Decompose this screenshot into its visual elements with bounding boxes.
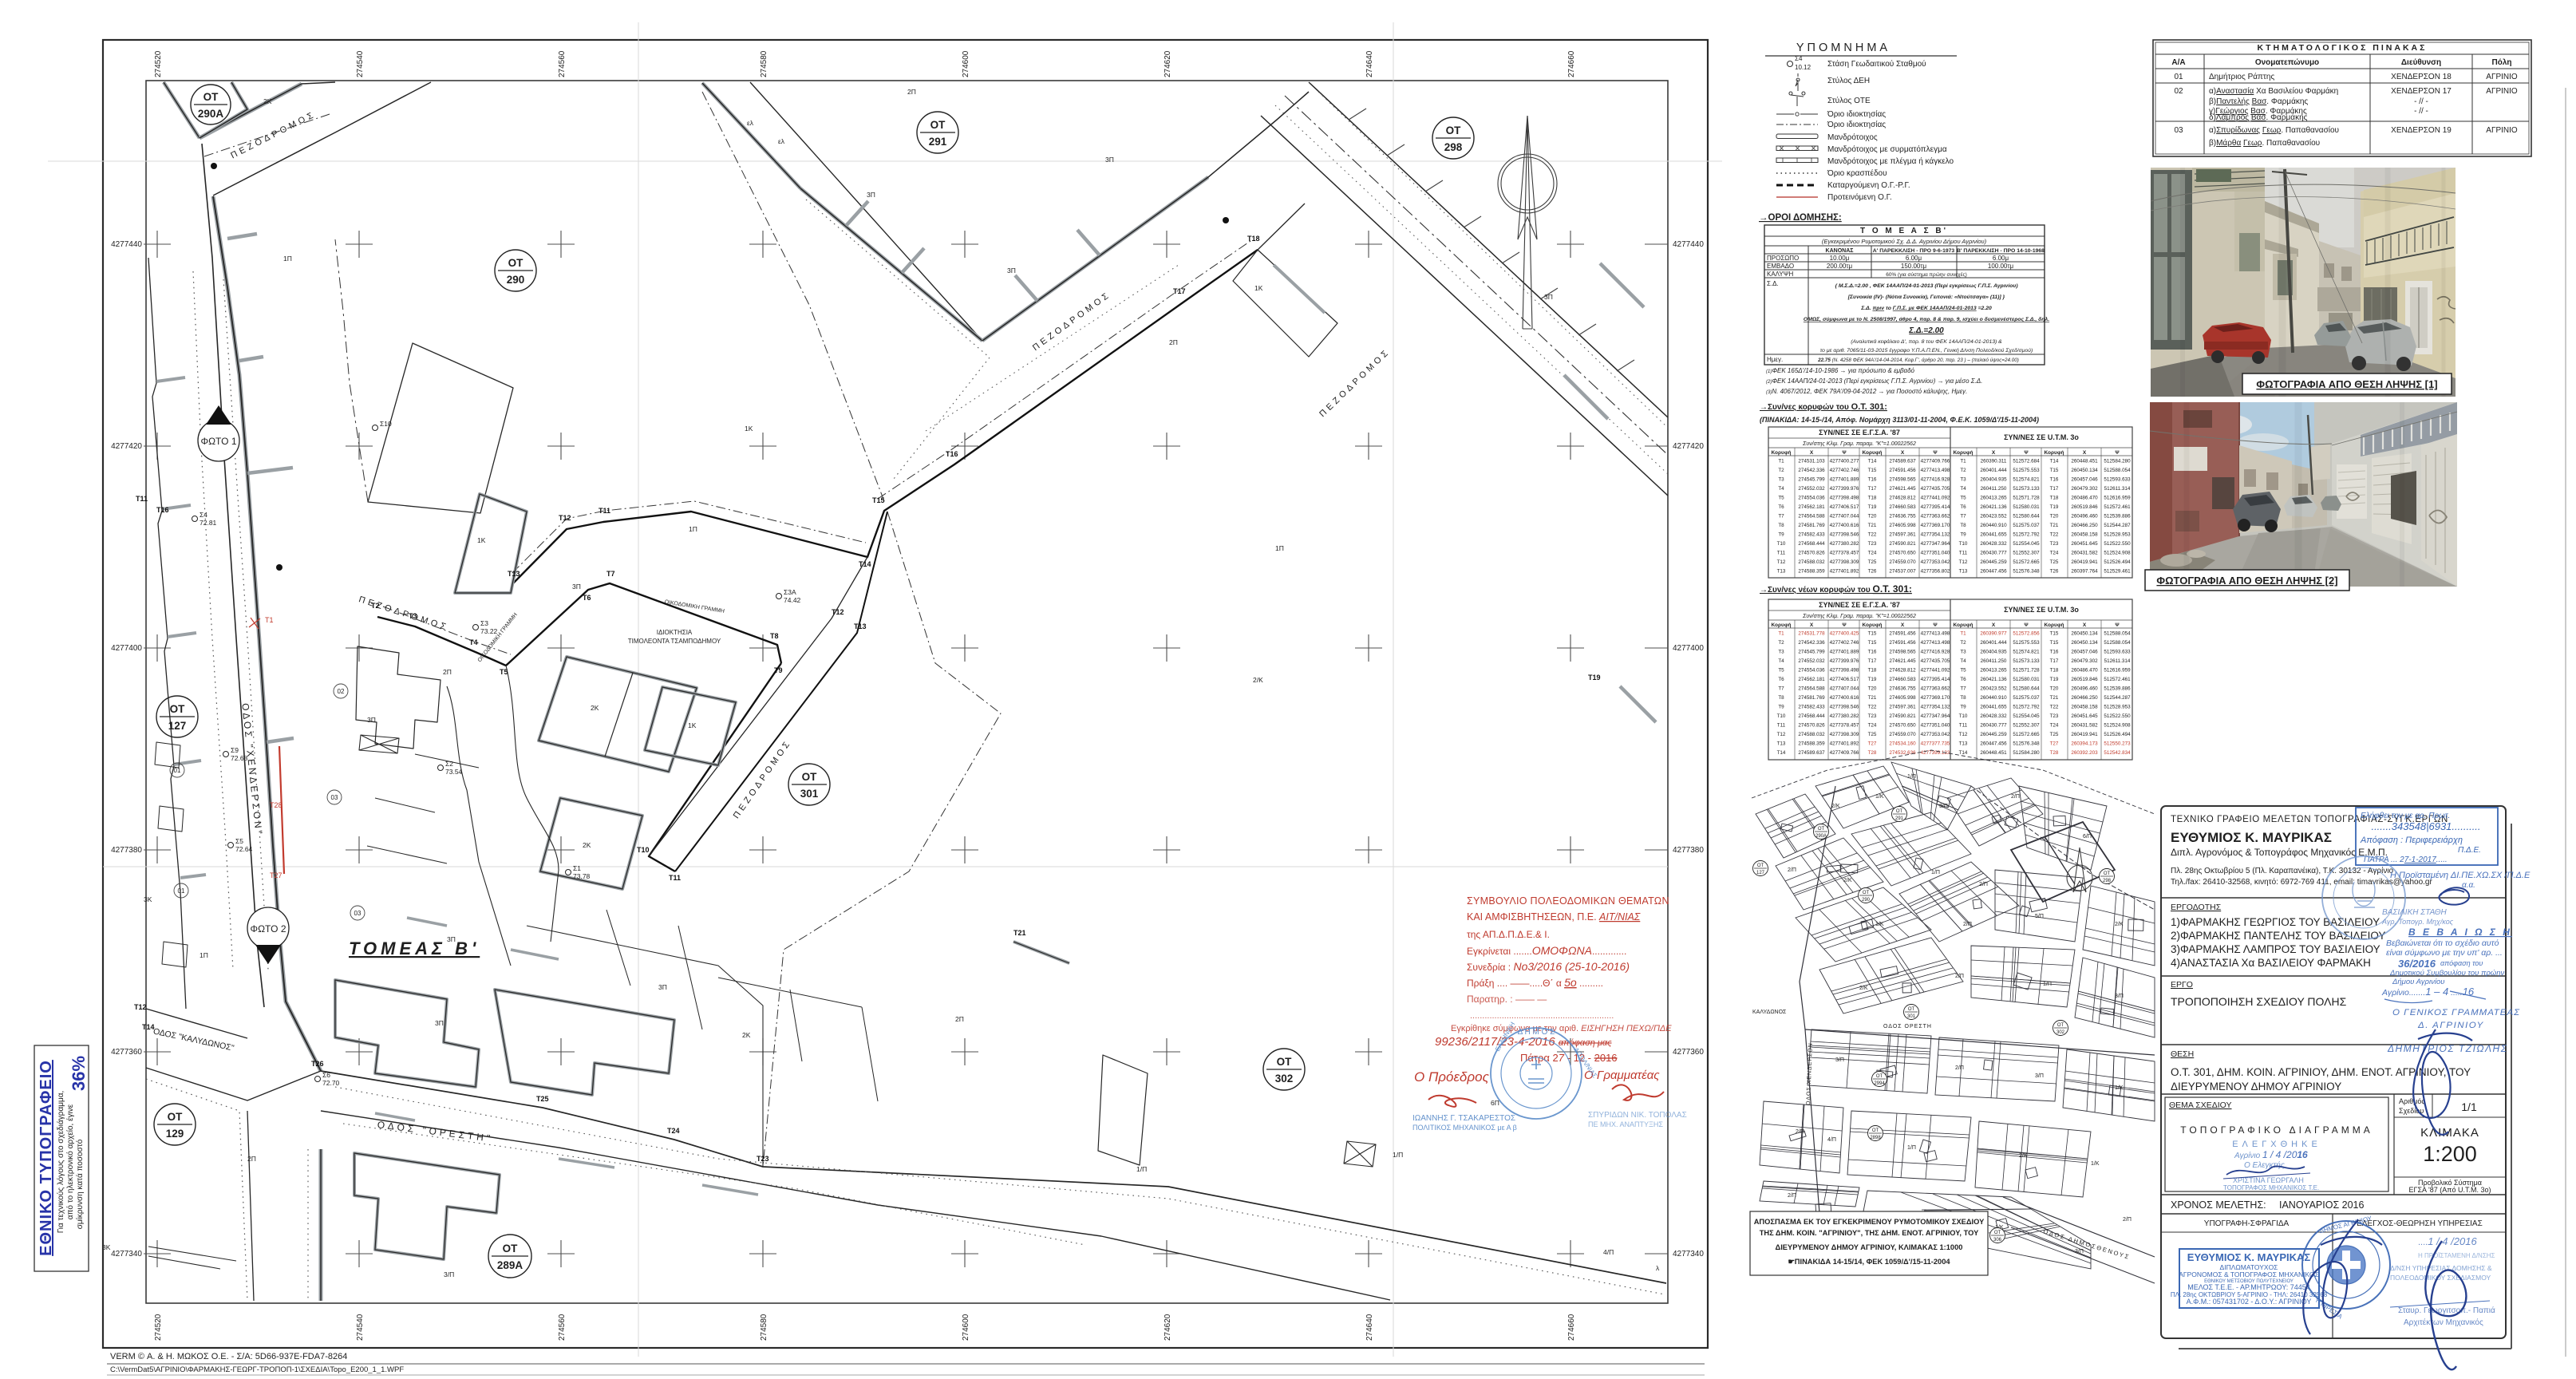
- svg-text:512574.821: 512574.821: [2013, 477, 2040, 483]
- svg-text:Τ18: Τ18: [2050, 668, 2059, 674]
- svg-text:ΔΙΕΥΡΥΜΕΝΟΥ ΔΗΜΟΥ ΑΓΡΙΝΙΟΥ: ΔΙΕΥΡΥΜΕΝΟΥ ΔΗΜΟΥ ΑΓΡΙΝΙΟΥ: [2171, 1081, 2341, 1093]
- svg-text:512572.461: 512572.461: [2104, 677, 2131, 682]
- svg-text:ΚΤΗΜΑΤΟΛΟΓΙΚΟΣ ΠΙΝΑΚΑΣ: ΚΤΗΜΑΤΟΛΟΓΙΚΟΣ ΠΙΝΑΚΑΣ: [2258, 43, 2428, 53]
- svg-text:2/Π: 2/Π: [1955, 1065, 1964, 1071]
- svg-text:4277363.662: 4277363.662: [1921, 686, 1950, 692]
- svg-text:ΚΑΛΥΨΗ: ΚΑΛΥΨΗ: [1767, 271, 1793, 278]
- svg-text:274531.103: 274531.103: [1798, 459, 1825, 464]
- svg-text:512526.494: 512526.494: [2104, 732, 2131, 737]
- svg-text:260428.332: 260428.332: [1980, 713, 2007, 719]
- svg-text:Τ10: Τ10: [1777, 713, 1786, 719]
- svg-text:4277407.044: 4277407.044: [1830, 514, 1859, 520]
- svg-text:512573.133: 512573.133: [2013, 658, 2040, 664]
- svg-text:150.00τμ: 150.00τμ: [1901, 263, 1927, 270]
- svg-text:Τ19: Τ19: [2050, 677, 2059, 682]
- svg-text:T13: T13: [854, 622, 867, 630]
- svg-text:4277440: 4277440: [111, 240, 142, 249]
- svg-text:274581.769: 274581.769: [1798, 523, 1825, 528]
- svg-text:T12: T12: [134, 1003, 147, 1011]
- svg-text:α)Αναστασία Χα Βασιλείου Φαρμά: α)Αναστασία Χα Βασιλείου Φαρμάκη: [2209, 86, 2338, 96]
- svg-text:290Α: 290Α: [1815, 834, 1827, 839]
- svg-text:ΤΗΣ ΔΗΜ. ΚΟΙΝ. "ΑΓΡΙΝΙΟΥ",: ΤΗΣ ΔΗΜ. ΚΟΙΝ. "ΑΓΡΙΝΙΟΥ", ΤΗΣ ΔΗΜ. ΕΝΟΤ…: [1760, 1229, 1979, 1237]
- svg-text:β)Μάρθα Γεωρ. Παπαθανασίου: β)Μάρθα Γεωρ. Παπαθανασίου: [2209, 138, 2320, 148]
- svg-text:ΕΜΒΑΔΟ: ΕΜΒΑΔΟ: [1767, 263, 1794, 270]
- svg-text:274598.565: 274598.565: [1889, 477, 1916, 483]
- svg-text:(Αναλυτικά κεφάλαιο Δ', παρ. 8: (Αναλυτικά κεφάλαιο Δ', παρ. 8 του ΦΕΚ 1…: [1851, 338, 2002, 345]
- svg-text:T17: T17: [1173, 287, 1186, 295]
- svg-text:274588.032: 274588.032: [1798, 732, 1825, 737]
- svg-text:ΤΙΜΟΛΕΟΝΤΑ ΤΣΑΜΠΟΔΗΜΟΥ: ΤΙΜΟΛΕΟΝΤΑ ΤΣΑΜΠΟΔΗΜΟΥ: [628, 638, 721, 645]
- svg-text:291: 291: [929, 136, 947, 148]
- svg-text:(2)ΦΕΚ 14ΑΑΠ/24-01-2013 (Περί: (2)ΦΕΚ 14ΑΑΠ/24-01-2013 (Περί εγκρίσεως …: [1766, 377, 1982, 385]
- svg-text:512584.280: 512584.280: [2104, 459, 2131, 464]
- svg-text:512539.886: 512539.886: [2104, 686, 2131, 692]
- svg-text:274568.444: 274568.444: [1798, 713, 1825, 719]
- svg-text:1Π: 1Π: [689, 525, 697, 533]
- svg-text:ΦΩΤΟΓΡΑΦΙΑ ΑΠΟ ΘΕΣΗ ΛΗΨΗΣ: ΦΩΤΟΓΡΑΦΙΑ ΑΠΟ ΘΕΣΗ ΛΗΨΗΣ [1]: [2256, 378, 2437, 390]
- svg-text:Τ12: Τ12: [1777, 559, 1786, 565]
- svg-text:Τ15: Τ15: [1868, 631, 1877, 637]
- svg-text:01: 01: [178, 887, 185, 895]
- svg-text:260431.582: 260431.582: [2071, 723, 2098, 729]
- svg-text:1Κ: 1Κ: [477, 536, 486, 544]
- svg-text:σμίκρυνση κατά ποσοστό: σμίκρυνση κατά ποσοστό: [75, 1139, 85, 1229]
- svg-text:C:\VermDat5\ΑΓΡΙΝΙΟ\ΦΑΡΜΑΚΗΣ-Γ: C:\VermDat5\ΑΓΡΙΝΙΟ\ΦΑΡΜΑΚΗΣ-ΓΕΩΡΓ-ΤΡΟΠΟ…: [110, 1365, 404, 1374]
- svg-text:274542.336: 274542.336: [1798, 468, 1825, 473]
- svg-text:298: 298: [2103, 879, 2112, 883]
- svg-text:2/Κ: 2/Κ: [1253, 676, 1263, 684]
- svg-text:512544.287: 512544.287: [2104, 523, 2131, 528]
- svg-text:ΠΕΖΟΔΡΟΜΟΣ: ΠΕΖΟΔΡΟΜΟΣ: [732, 737, 794, 820]
- svg-text:4277413.498: 4277413.498: [1921, 640, 1950, 646]
- svg-text:512580.644: 512580.644: [2013, 514, 2040, 520]
- svg-text:4277409.766: 4277409.766: [1921, 459, 1950, 464]
- svg-text:03: 03: [2174, 126, 2183, 135]
- svg-text:274660: 274660: [1567, 50, 1576, 77]
- svg-text:Σ4: Σ4: [200, 511, 207, 519]
- svg-text:ΦΩΤΟ 2: ΦΩΤΟ 2: [251, 923, 286, 934]
- svg-text:Τ25: Τ25: [2050, 559, 2059, 565]
- svg-text:{ Μ.Σ.Δ.=2.00 , ΦΕΚ 14ΑΑΠ/24-: { Μ.Σ.Δ.=2.00 , ΦΕΚ 14ΑΑΠ/24-01-2013 (Πε…: [1835, 283, 2018, 289]
- svg-text:Τ9: Τ9: [1960, 532, 1966, 538]
- svg-text:260486.470: 260486.470: [2071, 496, 2098, 501]
- svg-text:1/Κ: 1/Κ: [2115, 1085, 2124, 1091]
- svg-text:301: 301: [800, 788, 819, 800]
- svg-text:Εγκρίνεται .......ΟΜΟΦΩΝΑ.....: Εγκρίνεται .......ΟΜΟΦΩΝΑ.............: [1467, 944, 1626, 957]
- svg-text:Συν/στης Κλιμ. Γραμ. παραμ. "Κ: Συν/στης Κλιμ. Γραμ. παραμ. "Κ"=1.000225…: [1802, 441, 1916, 447]
- svg-text:Στύλος ΟΤΕ: Στύλος ΟΤΕ: [1827, 96, 1871, 105]
- svg-text:Τ13: Τ13: [1959, 569, 1968, 575]
- svg-text:Τ6: Τ6: [1960, 677, 1966, 682]
- svg-text:Τ8: Τ8: [1960, 523, 1966, 528]
- svg-text:ΙΑΝΟΥΑΡΙΟΣ 2016: ΙΑΝΟΥΑΡΙΟΣ 2016: [2279, 1199, 2364, 1211]
- svg-text:ΟΔΟΣ "ΧΕΝΔΕΡΣΟΝ": ΟΔΟΣ "ΧΕΝΔΕΡΣΟΝ": [239, 703, 264, 837]
- svg-text:02: 02: [338, 688, 345, 695]
- svg-text:5/Π: 5/Π: [2035, 914, 2044, 919]
- svg-text:Τ1: Τ1: [265, 616, 274, 624]
- svg-text:4277399.976: 4277399.976: [1830, 486, 1859, 492]
- svg-text:260390.977: 260390.977: [1980, 631, 2007, 637]
- svg-text:02: 02: [2174, 87, 2183, 96]
- svg-text:274621.445: 274621.445: [1889, 658, 1916, 664]
- svg-text:2/Κ: 2/Κ: [2019, 1153, 2028, 1159]
- svg-text:4277398.309: 4277398.309: [1830, 732, 1859, 737]
- svg-text:Τ20: Τ20: [1868, 686, 1877, 692]
- svg-text:274520: 274520: [154, 50, 163, 77]
- svg-text:512552.307: 512552.307: [2013, 723, 2040, 729]
- svg-text:Τ28: Τ28: [1868, 750, 1877, 756]
- svg-text:ελ: ελ: [747, 119, 754, 127]
- svg-text:α)Σπυρίδωνας Γεωρ. Παπαθανασίο: α)Σπυρίδωνας Γεωρ. Παπαθανασίου: [2209, 125, 2339, 135]
- svg-text:Χ: Χ: [2083, 622, 2087, 628]
- svg-text:2Π: 2Π: [443, 668, 452, 676]
- svg-text:3Π: 3Π: [658, 983, 667, 991]
- svg-text:Για τεχνικούς λόγους στο σ: Για τεχνικούς λόγους στο σχεδιάγραμμα,: [56, 1091, 65, 1234]
- svg-text:Σ9: Σ9: [231, 746, 239, 754]
- svg-text:4277351.040: 4277351.040: [1921, 551, 1950, 556]
- svg-text:274590.821: 274590.821: [1889, 541, 1916, 547]
- svg-text:512526.494: 512526.494: [2104, 559, 2131, 565]
- svg-text:274660.583: 274660.583: [1889, 677, 1916, 682]
- svg-text:274591.456: 274591.456: [1889, 468, 1916, 473]
- svg-text:2Κ: 2Κ: [591, 704, 599, 712]
- svg-text:Τ3: Τ3: [1778, 650, 1784, 655]
- svg-text:4277340: 4277340: [1673, 1250, 1704, 1258]
- svg-text:4277400.616: 4277400.616: [1830, 523, 1859, 528]
- svg-text:ΕΘΝΙΚΟ ΤΥΠΟΓΡΑΦΕΙΟ: ΕΘΝΙΚΟ ΤΥΠΟΓΡΑΦΕΙΟ: [38, 1060, 55, 1256]
- svg-text:260413.265: 260413.265: [1980, 668, 2007, 674]
- svg-text:- // -: - // -: [2414, 107, 2428, 116]
- svg-text:3Π: 3Π: [1544, 293, 1553, 301]
- svg-text:260441.655: 260441.655: [1980, 532, 2007, 538]
- svg-text:Τ21: Τ21: [2050, 523, 2059, 528]
- svg-text:T19: T19: [1588, 674, 1601, 682]
- svg-text:Ο Πρόεδρος: Ο Πρόεδρος: [1414, 1069, 1490, 1085]
- svg-text:ΚΑΛΥΔΩΝΟΣ: ΚΑΛΥΔΩΝΟΣ: [1752, 1010, 1787, 1015]
- svg-text:Κορυφή: Κορυφή: [1954, 450, 1973, 456]
- svg-text:T3: T3: [409, 612, 417, 620]
- svg-text:4277400.425: 4277400.425: [1830, 631, 1859, 637]
- svg-text:T7: T7: [606, 570, 615, 578]
- svg-text:4277401.892: 4277401.892: [1830, 569, 1859, 575]
- svg-text:274570.650: 274570.650: [1889, 723, 1916, 729]
- svg-text:512524.908: 512524.908: [2104, 723, 2131, 729]
- svg-text:1/1: 1/1: [2461, 1100, 2477, 1113]
- svg-text:ΚΑΙ ΑΜΦΙΣΒΗΤΗΣΕΩΝ, Π.Ε. ΑΙΤ/ΝΙ: ΚΑΙ ΑΜΦΙΣΒΗΤΗΣΕΩΝ, Π.Ε. ΑΙΤ/ΝΙΑΣ: [1467, 911, 1641, 923]
- svg-text:T25: T25: [536, 1095, 549, 1103]
- svg-text:4277400: 4277400: [1673, 644, 1704, 653]
- svg-text:512571.728: 512571.728: [2013, 496, 2040, 501]
- svg-text:260466.250: 260466.250: [2071, 523, 2098, 528]
- svg-text:Ψ: Ψ: [2115, 450, 2119, 456]
- svg-text:4277435.705: 4277435.705: [1921, 658, 1950, 664]
- svg-text:ΙΔΙΟΚΤΗΣΙΑ: ΙΔΙΟΚΤΗΣΙΑ: [657, 629, 693, 636]
- svg-text:3Π: 3Π: [1105, 156, 1114, 164]
- svg-text:4277369.170: 4277369.170: [1921, 523, 1950, 528]
- svg-text:274660.583: 274660.583: [1889, 504, 1916, 510]
- svg-text:Τ20: Τ20: [2050, 686, 2059, 692]
- svg-text:Δημήτριος Ράπτης: Δημήτριος Ράπτης: [2209, 72, 2274, 81]
- svg-text:ΥΠΟΜΝΗΜΑ: ΥΠΟΜΝΗΜΑ: [1796, 41, 1891, 54]
- svg-text:.......343548|6931..........: .......343548|6931..........: [2371, 820, 2480, 832]
- svg-text:290A: 290A: [198, 108, 224, 120]
- svg-text:73.22: 73.22: [480, 627, 498, 635]
- svg-text:Τ4: Τ4: [1960, 486, 1966, 492]
- svg-text:260431.582: 260431.582: [2071, 551, 2098, 556]
- svg-text:512524.908: 512524.908: [2104, 551, 2131, 556]
- svg-text:δ)Λάμπρος Βασ. Φαρμάκης: δ)Λάμπρος Βασ. Φαρμάκης: [2209, 113, 2308, 122]
- svg-text:512572.461: 512572.461: [2104, 504, 2131, 510]
- svg-text:2/Κ: 2/Κ: [1831, 804, 1840, 809]
- svg-text:ΣΥΝ/ΝΕΣ ΣΕ Ε.Γ.Σ.Α. '87: ΣΥΝ/ΝΕΣ ΣΕ Ε.Γ.Σ.Α. '87: [1819, 429, 1900, 437]
- svg-text:512522.550: 512522.550: [2104, 541, 2131, 547]
- svg-text:1/Π: 1/Π: [1136, 1165, 1147, 1173]
- svg-text:Προτεινόμενη Ο.Γ.: Προτεινόμενη Ο.Γ.: [1827, 192, 1892, 202]
- svg-text:Στύλος ΔΕΗ: Στύλος ΔΕΗ: [1827, 76, 1870, 85]
- svg-text:ΟΤ: ΟΤ: [1757, 863, 1764, 868]
- svg-text:289A: 289A: [497, 1259, 523, 1271]
- svg-text:Τ8: Τ8: [1778, 523, 1784, 528]
- svg-text:Τ16: Τ16: [2050, 477, 2059, 483]
- svg-text:Τ23: Τ23: [1868, 713, 1877, 719]
- svg-text:είναι σύμφωνο με την υπ' αρ. .: είναι σύμφωνο με την υπ' αρ. ...: [2386, 948, 2503, 958]
- svg-text:ελ: ελ: [778, 137, 785, 145]
- svg-text:T5: T5: [500, 668, 508, 676]
- svg-text:274560: 274560: [558, 50, 567, 77]
- svg-text:72.70: 72.70: [322, 1079, 340, 1087]
- svg-text:2/Π: 2/Π: [1788, 867, 1796, 873]
- svg-text:Τ7: Τ7: [1778, 686, 1784, 692]
- svg-text:Ελήφθει την με αρ. Πρωτ.: Ελήφθει την με αρ. Πρωτ.: [2361, 811, 2450, 820]
- svg-text:ΟΔΟΣ ΟΡΕΣΤΗ: ΟΔΟΣ ΟΡΕΣΤΗ: [1883, 1024, 1932, 1029]
- svg-text:Τ12: Τ12: [1959, 559, 1968, 565]
- svg-text:1Κ: 1Κ: [1254, 284, 1263, 292]
- svg-text:ΘΕΣΗ: ΘΕΣΗ: [2171, 1049, 2194, 1059]
- svg-text:Τ23: Τ23: [1868, 541, 1877, 547]
- svg-text:274600: 274600: [962, 1314, 970, 1341]
- svg-text:4277407.044: 4277407.044: [1830, 686, 1859, 692]
- svg-text:274552.032: 274552.032: [1798, 486, 1825, 492]
- svg-text:4277347.964: 4277347.964: [1921, 713, 1950, 719]
- svg-text:ΠΟΛΙΤΙΚΟΣ ΜΗΧΑΝΙΚΟΣ με Α β: ΠΟΛΙΤΙΚΟΣ ΜΗΧΑΝΙΚΟΣ με Α β: [1412, 1124, 1517, 1132]
- svg-text:4277401.889: 4277401.889: [1830, 650, 1859, 655]
- svg-text:→Συν/νες κορυφών του Ο.Τ. 301:: →Συν/νες κορυφών του Ο.Τ. 301:: [1760, 402, 1887, 412]
- svg-text:274636.755: 274636.755: [1889, 514, 1916, 520]
- svg-text:Πόλη: Πόλη: [2492, 58, 2512, 67]
- svg-text:274591.456: 274591.456: [1889, 631, 1916, 637]
- svg-text:ΑΓΡΙΝΙΟ: ΑΓΡΙΝΙΟ: [2486, 73, 2518, 81]
- svg-text:512550.273: 512550.273: [2104, 741, 2131, 747]
- svg-text:Χ: Χ: [1810, 622, 1814, 628]
- svg-text:Τ14: Τ14: [2050, 459, 2059, 464]
- svg-text:ΑΓΡΟΝΟΜΟΣ & ΤΟΠΟΓΡΑΦΟΣ ΜΗΧΑΝΙΚ: ΑΓΡΟΝΟΜΟΣ & ΤΟΠΟΓΡΑΦΟΣ ΜΗΧΑΝΙΚΟΣ: [2179, 1270, 2318, 1278]
- svg-text:260419.941: 260419.941: [2071, 559, 2098, 565]
- svg-text:ΚΑΝΟΝΑΣ: ΚΑΝΟΝΑΣ: [1826, 248, 1854, 254]
- svg-text:Κορυφή: Κορυφή: [2045, 450, 2064, 456]
- svg-text:274581.769: 274581.769: [1798, 695, 1825, 701]
- svg-text:4277441.092: 4277441.092: [1921, 668, 1950, 674]
- svg-text:Καταργούμενη Ο.Γ.-Ρ.Γ.: Καταργούμενη Ο.Γ.-Ρ.Γ.: [1827, 180, 1910, 190]
- svg-text:73.54: 73.54: [445, 768, 463, 776]
- svg-text:274628.812: 274628.812: [1889, 668, 1916, 674]
- svg-text:512572.792: 512572.792: [2013, 532, 2040, 538]
- svg-text:274570.826: 274570.826: [1798, 551, 1825, 556]
- svg-text:Τ25: Τ25: [1868, 559, 1877, 565]
- svg-text:260411.250: 260411.250: [1981, 486, 2007, 492]
- svg-text:Τ22: Τ22: [1868, 532, 1877, 538]
- svg-text:Τ17: Τ17: [2050, 658, 2059, 664]
- svg-text:1/Κ: 1/Κ: [2091, 1161, 2100, 1167]
- svg-text:3/Π: 3/Π: [2035, 1073, 2044, 1079]
- svg-text:Αρχιτέκτων Μηχανικός: Αρχιτέκτων Μηχανικός: [2404, 1318, 2483, 1327]
- svg-text:512611.314: 512611.314: [2104, 486, 2131, 492]
- svg-text:Τ21: Τ21: [1868, 523, 1877, 528]
- svg-text:4277440: 4277440: [1673, 240, 1704, 249]
- svg-text:260450.134: 260450.134: [2071, 631, 2098, 637]
- svg-text:ΠΑΤΡΑ ... 27-1-2017.....: ΠΑΤΡΑ ... 27-1-2017.....: [2364, 855, 2448, 864]
- svg-text:Τ2: Τ2: [1960, 468, 1966, 473]
- svg-text:Τ13: Τ13: [1777, 569, 1786, 575]
- svg-text:Στάση Γεωδαιτικού Σταθμού: Στάση Γεωδαιτικού Σταθμού: [1827, 59, 1926, 69]
- svg-text:Τ5: Τ5: [1960, 668, 1966, 674]
- svg-text:Τ13: Τ13: [1777, 741, 1786, 747]
- svg-text:127: 127: [168, 720, 187, 732]
- svg-text:Σ6: Σ6: [322, 1071, 330, 1079]
- svg-text:Τ5: Τ5: [1960, 496, 1966, 501]
- svg-text:512552.307: 512552.307: [2013, 551, 2040, 556]
- svg-text:OT: OT: [170, 703, 186, 715]
- svg-text:ΣΥΜΒΟΥΛΙΟ ΠΟΛΕΟΔΟΜΙΚΩΝ ΘΕΜΑΤΩΝ: ΣΥΜΒΟΥΛΙΟ ΠΟΛΕΟΔΟΜΙΚΩΝ ΘΕΜΑΤΩΝ: [1467, 895, 1669, 907]
- svg-text:Β Ε Β Α Ι Ω Σ Η: Β Ε Β Α Ι Ω Σ Η: [2408, 927, 2512, 938]
- svg-text:T24: T24: [667, 1127, 680, 1135]
- svg-text:260457.046: 260457.046: [2071, 650, 2098, 655]
- svg-text:- // -: - // -: [2414, 97, 2428, 106]
- svg-text:260401.444: 260401.444: [1980, 640, 2007, 646]
- svg-text:Τ28: Τ28: [2050, 750, 2059, 756]
- svg-text:T21: T21: [1013, 929, 1026, 937]
- svg-text:512580.031: 512580.031: [2013, 677, 2040, 682]
- svg-text:ΧΕΝΔΕΡΣΟΝ 19: ΧΕΝΔΕΡΣΟΝ 19: [2391, 126, 2452, 135]
- svg-text:512529.461: 512529.461: [2104, 569, 2131, 575]
- svg-text:Κορυφή: Κορυφή: [1772, 622, 1792, 628]
- svg-text:Αριθμός: Αριθμός: [2399, 1097, 2425, 1105]
- svg-text:4277399.976: 4277399.976: [1830, 658, 1859, 664]
- svg-text:260451.645: 260451.645: [2071, 713, 2098, 719]
- svg-text:274621.445: 274621.445: [1889, 486, 1916, 492]
- svg-text:1/Π: 1/Π: [2043, 982, 2052, 987]
- svg-text:ΧΕΝΔΕΡΣΟΝ 17: ΧΕΝΔΕΡΣΟΝ 17: [2391, 87, 2452, 96]
- svg-text:2)ΦΑΡΜΑΚΗΣ ΠΑΝΤΕΛΗΣ ΤΟΥ ΒΑΣΙΛΕ: 2)ΦΑΡΜΑΚΗΣ ΠΑΝΤΕΛΗΣ ΤΟΥ ΒΑΣΙΛΕΙΟΥ: [2171, 930, 2385, 942]
- svg-text:T15: T15: [872, 496, 885, 504]
- svg-text:512542.834: 512542.834: [2104, 750, 2131, 756]
- svg-text:3/Π: 3/Π: [1939, 804, 1948, 809]
- svg-text:Τ25: Τ25: [1868, 732, 1877, 737]
- svg-text:4277340: 4277340: [111, 1250, 142, 1258]
- svg-text:274636.755: 274636.755: [1889, 686, 1916, 692]
- svg-text:Τ4: Τ4: [1778, 658, 1784, 664]
- svg-text:ΧΡΟΝΟΣ ΜΕΛΕΤΗΣ:: ΧΡΟΝΟΣ ΜΕΛΕΤΗΣ:: [2171, 1199, 2266, 1211]
- svg-text:Τ7: Τ7: [1960, 686, 1966, 692]
- svg-text:274640: 274640: [1365, 50, 1374, 77]
- svg-text:Σ10: Σ10: [380, 420, 392, 428]
- svg-text:274591.456: 274591.456: [1889, 640, 1916, 646]
- svg-text:Τ15: Τ15: [2050, 640, 2059, 646]
- svg-text:129: 129: [166, 1128, 184, 1140]
- svg-text:Τ12: Τ12: [1959, 732, 1968, 737]
- svg-text:Τ11: Τ11: [1777, 723, 1786, 729]
- svg-text:Τ10: Τ10: [1959, 541, 1968, 547]
- svg-text:Σ3: Σ3: [480, 619, 488, 627]
- svg-text:Δ/ΝΣΗ ΥΠΗΡΕΣΙΑΣ ΔΟΜΗΣΗΣ &: Δ/ΝΣΗ ΥΠΗΡΕΣΙΑΣ ΔΟΜΗΣΗΣ &: [2390, 1264, 2492, 1272]
- svg-text:512616.959: 512616.959: [2104, 668, 2131, 674]
- svg-text:Τ4: Τ4: [1778, 486, 1784, 492]
- svg-text:ΟΤ: ΟΤ: [1818, 827, 1825, 832]
- svg-text:Τ14: Τ14: [1868, 459, 1877, 464]
- svg-text:Τ21: Τ21: [2050, 695, 2059, 701]
- svg-text:2Κ: 2Κ: [742, 1031, 751, 1039]
- svg-text:274562.181: 274562.181: [1798, 677, 1825, 682]
- svg-text:274554.036: 274554.036: [1798, 496, 1825, 501]
- svg-text:(ΠΙΝΑΚΙΔΑ: 14-15-/14, Απόφ. Νο: (ΠΙΝΑΚΙΔΑ: 14-15-/14, Απόφ. Νομάρχη 3113…: [1760, 416, 2039, 424]
- svg-text:302: 302: [1275, 1073, 1294, 1085]
- svg-text:OT: OT: [802, 771, 818, 783]
- svg-text:2/Π: 2/Π: [1979, 882, 1988, 887]
- svg-text:274570.650: 274570.650: [1889, 551, 1916, 556]
- svg-text:ΠΡΟΣΩΠΟ: ΠΡΟΣΩΠΟ: [1767, 255, 1799, 262]
- svg-text:03: 03: [331, 794, 338, 801]
- svg-text:Τ27: Τ27: [1868, 741, 1877, 747]
- svg-text:Μανδρότοιχος με συρματόπλεγμα: Μανδρότοιχος με συρματόπλεγμα: [1827, 144, 1947, 154]
- svg-text:Τ24: Τ24: [1868, 551, 1877, 556]
- svg-text:512572.684: 512572.684: [2013, 459, 2040, 464]
- svg-text:274628.812: 274628.812: [1889, 496, 1916, 501]
- svg-text:β)Παντελής Βασ. Φαρμάκης: β)Παντελής Βασ. Φαρμάκης: [2209, 97, 2308, 106]
- svg-text:ΕΛΕΓΧΟΣ-ΘΕΩΡΗΣΗ ΥΠΗΡΕΣΙΑΣ: ΕΛΕΓΧΟΣ-ΘΕΩΡΗΣΗ ΥΠΗΡΕΣΙΑΣ: [2357, 1219, 2483, 1228]
- svg-text:4277354.132: 4277354.132: [1921, 705, 1950, 710]
- svg-text:260479.302: 260479.302: [2071, 658, 2098, 664]
- svg-text:260421.136: 260421.136: [1980, 504, 2007, 510]
- svg-text:1/Κ: 1/Κ: [1875, 922, 1884, 927]
- svg-text:274531.778: 274531.778: [1798, 631, 1825, 637]
- svg-text:Τ18: Τ18: [2050, 496, 2059, 501]
- svg-text:Τ27: Τ27: [2050, 741, 2059, 747]
- svg-text:Κορυφή: Κορυφή: [1863, 622, 1883, 628]
- svg-text:274589.637: 274589.637: [1889, 459, 1916, 464]
- svg-text:306: 306: [1993, 1238, 2002, 1243]
- svg-text:Κορυφή: Κορυφή: [1863, 450, 1883, 456]
- svg-text:260411.250: 260411.250: [1981, 658, 2007, 664]
- svg-text:ΠΕΖΟΔΡΟΜΟΣ: ΠΕΖΟΔΡΟΜΟΣ: [1318, 347, 1392, 420]
- svg-text:Παρατηρ. : —— —: Παρατηρ. : —— —: [1467, 994, 1547, 1005]
- svg-text:ΧΕΝΔΕΡΣΟΝ 18: ΧΕΝΔΕΡΣΟΝ 18: [2391, 73, 2452, 81]
- svg-text:4277398.498: 4277398.498: [1830, 668, 1859, 674]
- svg-text:4277356.802: 4277356.802: [1921, 569, 1950, 575]
- svg-text:T26: T26: [311, 1060, 324, 1068]
- svg-text:512588.054: 512588.054: [2104, 631, 2131, 637]
- svg-text:72.81: 72.81: [200, 519, 217, 527]
- svg-text:Ο ΓΕΝΙΚΟΣ ΓΡΑΜΜΑΤΕΑΣ: Ο ΓΕΝΙΚΟΣ ΓΡΑΜΜΑΤΕΑΣ: [2392, 1008, 2520, 1017]
- svg-text:Ονοματεπώνυμο: Ονοματεπώνυμο: [2255, 58, 2319, 67]
- svg-text:T12: T12: [559, 514, 571, 522]
- svg-text:Η ΠΡΟΪΣΤΑΜΕΝΗ Δ/ΝΣΗΣ: Η ΠΡΟΪΣΤΑΜΕΝΗ Δ/ΝΣΗΣ: [2418, 1252, 2495, 1259]
- svg-text:4277378.457: 4277378.457: [1830, 551, 1859, 556]
- svg-text:274660: 274660: [1567, 1314, 1576, 1341]
- svg-text:274600: 274600: [962, 50, 970, 77]
- svg-text:4277400: 4277400: [111, 644, 142, 653]
- svg-text:Όριο ιδιοκτησίας: Όριο ιδιοκτησίας: [1827, 109, 1886, 119]
- svg-text:260397.764: 260397.764: [2071, 569, 2098, 575]
- svg-text:260457.046: 260457.046: [2071, 477, 2098, 483]
